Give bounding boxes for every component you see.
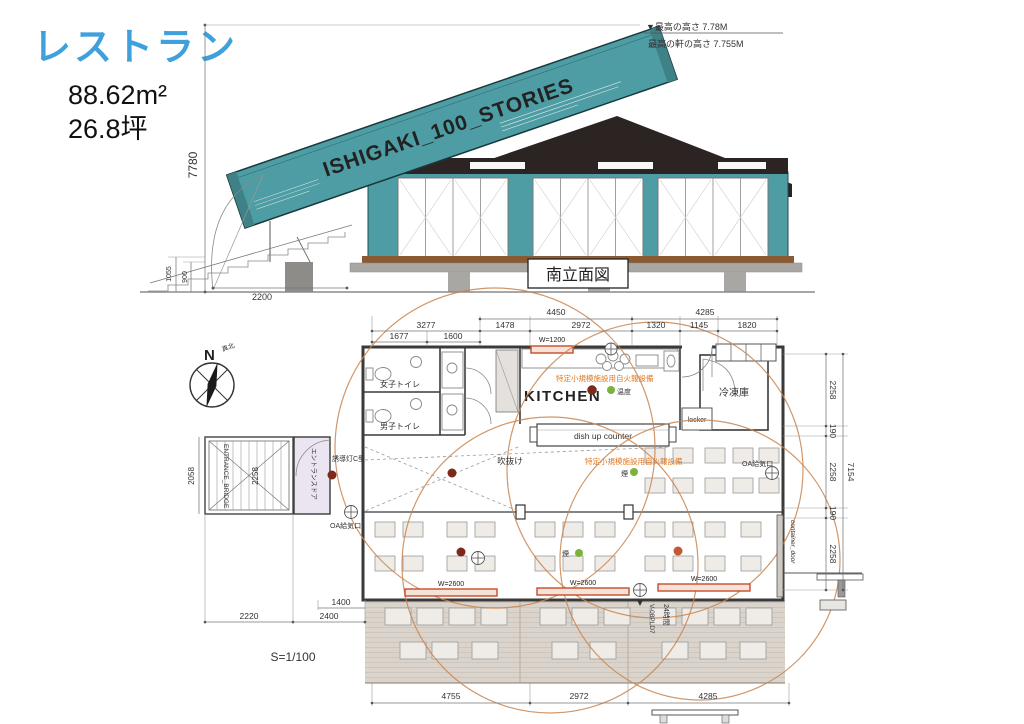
compass-n: N: [204, 347, 216, 364]
dim-right-190a: 190: [828, 424, 838, 438]
clerestory-slit: [598, 162, 653, 169]
container-support-strut: [297, 237, 310, 262]
oa-vent-label: OA給気口: [330, 521, 361, 530]
back-door: [682, 344, 712, 377]
container-door-label: container_door: [789, 520, 796, 564]
floor-vent: [472, 552, 485, 565]
heat-sensor-dot: [607, 386, 615, 394]
dim-1600: 1600: [444, 331, 463, 341]
window-bay: [533, 178, 643, 257]
bridge-label: ENTRANCE_BRIDGE: [222, 444, 229, 509]
freezer-room: 冷凍庫: [703, 359, 749, 399]
scale-note: S=1/100: [270, 650, 315, 664]
compass: N 真北: [190, 340, 236, 408]
north-needle: [202, 362, 222, 409]
alarm-sensor-dot: [588, 386, 597, 395]
dim-1145: 1145: [690, 320, 709, 330]
smoke-sensor-dot: [630, 468, 638, 476]
w2600-label: W=2600: [438, 581, 464, 588]
dim-2220: 2220: [240, 611, 259, 621]
heat-sensor-label: 温度: [617, 387, 631, 396]
fan-24h-label: 24時間: [662, 604, 670, 626]
guide-light-dot: [328, 471, 337, 480]
alarm-sensor-dot: [457, 548, 466, 557]
column: [516, 505, 525, 519]
mens-toilet: 男子トイレ: [366, 399, 422, 432]
fire-alarm-note-hall: 特定小規模施設用自火報設備: [585, 456, 683, 466]
dim-4285: 4285: [696, 307, 715, 317]
dim-7154: 7154: [846, 463, 856, 482]
compass-true-north: 真北: [220, 340, 236, 353]
fan-model-label: V-08PLD7: [648, 604, 655, 634]
elevation-drawing: ISHIGAKI_100_STORIES 7780 1055 900 2200 …: [0, 0, 1024, 312]
dim-1400: 1400: [332, 597, 351, 607]
dim-right-190b: 190: [828, 506, 838, 520]
mens-toilet-label: 男子トイレ: [380, 422, 420, 431]
column: [624, 505, 633, 519]
container-door-panel: [777, 515, 783, 597]
guide-light-label: 誘導灯C型: [332, 454, 365, 463]
w1200-label: W=1200: [539, 337, 565, 344]
floor-plan-drawing: N 真北: [0, 280, 1024, 724]
oa-vent-left: OA給気口: [330, 506, 361, 531]
note-eave-height: 最高の軒の高さ 7.755M: [648, 38, 744, 49]
wash-closets: [442, 352, 491, 430]
dim-2972: 2972: [572, 320, 591, 330]
hall-window: [658, 584, 750, 591]
dim-1677: 1677: [390, 331, 409, 341]
w2600-label: W=2600: [691, 576, 717, 583]
freezer-label: 冷凍庫: [719, 386, 749, 399]
dim-2058: 2058: [187, 467, 196, 485]
dim-4285b: 4285: [699, 691, 718, 701]
entrance-bridge: ENTRANCE_BRIDGE 2258: [205, 437, 293, 514]
womens-toilet-label: 女子トイレ: [380, 379, 420, 389]
bridge-dim: 2258: [251, 467, 260, 485]
top-window: [716, 344, 776, 361]
dim-4450: 4450: [547, 307, 566, 317]
dim-1820: 1820: [738, 320, 757, 330]
oa-vent-right: OA給気口: [742, 459, 779, 480]
dim-7780: 7780: [186, 151, 200, 178]
dim-1478: 1478: [496, 320, 515, 330]
deck-terrace: [365, 600, 785, 683]
clerestory-slit: [470, 162, 525, 169]
smoke-sensor-label: 煙: [562, 549, 569, 558]
clerestory-slit: [718, 162, 766, 169]
void-label: 吹抜け: [497, 456, 523, 466]
dim-2972b: 2972: [570, 691, 589, 701]
stair-rail: [150, 225, 352, 283]
dim-3277: 3277: [417, 320, 436, 330]
dim-right-2258a: 2258: [828, 381, 838, 400]
w2600-label: W=2600: [570, 580, 596, 587]
drawing-sheet: レストラン 88.62m² 26.8坪: [0, 0, 1024, 724]
alarm-sensor-dot: [674, 547, 683, 556]
window-bay: [658, 178, 768, 257]
dim-2400: 2400: [320, 611, 339, 621]
womens-toilet: 女子トイレ: [366, 357, 422, 390]
dim-right-2258c: 2258: [828, 545, 838, 564]
dim-1320: 1320: [647, 320, 666, 330]
alarm-sensor-dot: [448, 469, 457, 478]
window-bay: [398, 178, 508, 257]
hall-window: [405, 589, 497, 596]
oa-vent-label: OA給気口: [742, 459, 773, 468]
top-vent: [605, 343, 617, 355]
entrance-door-label: エントランスドア: [310, 448, 318, 500]
note-max-height: ▼最高の高さ 7.78M: [646, 21, 727, 32]
smoke-sensor-dot: [575, 549, 583, 557]
dim-4755: 4755: [442, 691, 461, 701]
smoke-sensor-label: 煙: [621, 469, 628, 478]
kitchen: KITCHEN 特定小規模施設用自火報設備 温度: [522, 349, 679, 405]
hall-window: [537, 588, 629, 595]
dim-right-2258b: 2258: [828, 463, 838, 482]
